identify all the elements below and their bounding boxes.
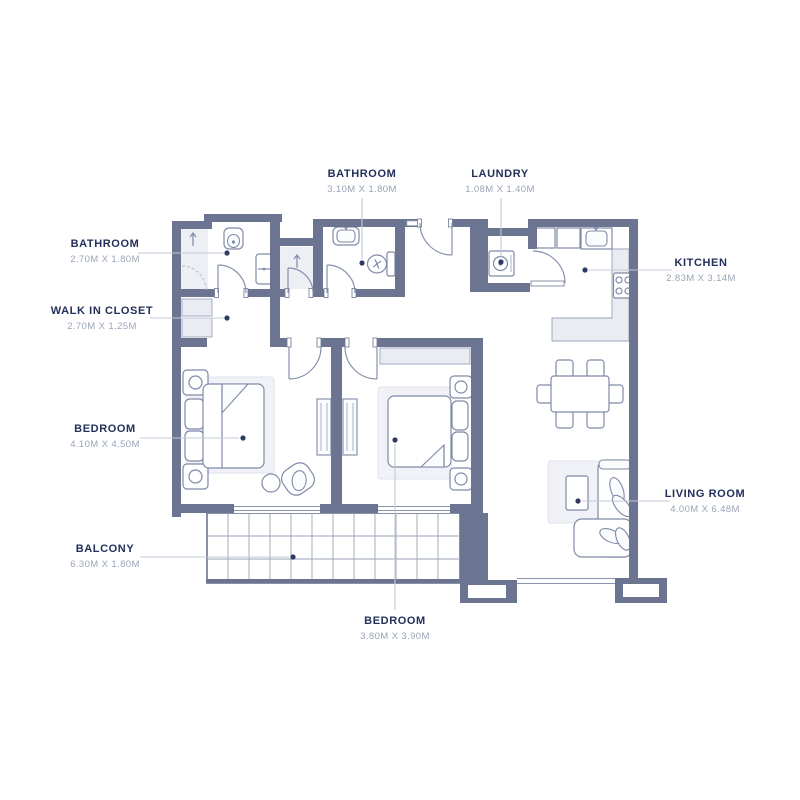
fridge-icon xyxy=(534,228,555,248)
label-bathroom-2: BATHROOM 3.10M X 1.80M xyxy=(327,168,397,195)
room-dims: 2.70M X 1.80M xyxy=(70,254,140,265)
room-dims: 1.08M X 1.40M xyxy=(465,184,535,195)
room-dims: 2.70M X 1.25M xyxy=(67,321,137,332)
room-name: KITCHEN xyxy=(674,257,727,269)
bedroom-1-window xyxy=(234,504,320,513)
room-name: BALCONY xyxy=(76,543,135,555)
toilet-icon xyxy=(224,228,243,249)
nightstand xyxy=(183,464,208,489)
column-inset xyxy=(623,584,659,597)
balcony-outer-edge xyxy=(206,579,461,584)
label-bathroom-1: BATHROOM 2.70M X 1.80M xyxy=(70,238,140,265)
room-dims: 4.10M X 4.50M xyxy=(70,439,140,450)
nightstand xyxy=(450,468,472,490)
headboard-cushion xyxy=(452,432,468,461)
label-laundry: LAUNDRY 1.08M X 1.40M xyxy=(465,168,535,195)
label-walk-in-closet: WALK IN CLOSET 2.70M X 1.25M xyxy=(51,305,154,332)
room-name: LAUNDRY xyxy=(471,168,529,180)
room-dims: 3.10M X 1.80M xyxy=(327,184,397,195)
room-name: BATHROOM xyxy=(71,238,140,250)
bedroom-2-door xyxy=(345,338,377,379)
sofa-armrest xyxy=(599,460,631,469)
laundry-door xyxy=(531,251,565,286)
floorplan-page: BATHROOM 2.70M X 1.80M WALK IN CLOSET 2.… xyxy=(0,0,800,800)
bedroom-2-wardrobe xyxy=(380,348,470,364)
bedroom-1-door xyxy=(287,338,321,379)
room-dims: 3.80M X 3.90M xyxy=(360,631,430,642)
entry-door xyxy=(418,219,453,255)
entry-niche xyxy=(407,221,418,226)
living-room-window xyxy=(517,576,615,586)
bathroom-2-door xyxy=(324,265,356,298)
room-name: BATHROOM xyxy=(328,168,397,180)
room-name: LIVING ROOM xyxy=(665,488,746,500)
kitchen-cabinet-icon xyxy=(557,228,580,248)
dining-table xyxy=(551,376,609,412)
side-table xyxy=(262,474,280,492)
label-kitchen: KITCHEN 2.83M X 3.14M xyxy=(666,257,736,284)
bedroom-2-window xyxy=(378,504,450,513)
coffee-table xyxy=(566,476,588,510)
label-living-room: LIVING ROOM 4.00M X 6.48M xyxy=(665,488,746,515)
toilet-icon xyxy=(368,252,396,276)
room-dims: 6.30M X 1.80M xyxy=(70,559,140,570)
sliding-wardrobe-left xyxy=(317,399,331,455)
bathroom-1-door xyxy=(215,265,249,298)
room-dims: 4.00M X 6.48M xyxy=(670,504,740,515)
label-balcony: BALCONY 6.30M X 1.80M xyxy=(70,543,140,570)
balcony-area xyxy=(206,513,461,584)
room-dims: 2.83M X 3.14M xyxy=(666,273,736,284)
closet-shelf xyxy=(182,318,212,337)
floorplan-svg: BATHROOM 2.70M X 1.80M WALK IN CLOSET 2.… xyxy=(0,0,800,800)
room-name: WALK IN CLOSET xyxy=(51,305,154,317)
shower-divider xyxy=(208,229,211,289)
dining-set xyxy=(537,360,623,428)
sliding-wardrobe-right xyxy=(343,399,357,455)
headboard-cushion xyxy=(185,399,204,429)
label-bedroom-1: BEDROOM 4.10M X 4.50M xyxy=(70,423,140,450)
label-bedroom-2: BEDROOM 3.80M X 3.90M xyxy=(360,615,430,642)
headboard-cushion xyxy=(185,431,204,461)
vanity-cabinet-icon xyxy=(256,254,272,284)
headboard-cushion xyxy=(452,401,468,430)
room-name: BEDROOM xyxy=(364,615,426,627)
column-inset xyxy=(468,585,506,598)
nightstand xyxy=(450,376,472,398)
room-name: BEDROOM xyxy=(74,423,136,435)
closet-shelf xyxy=(182,299,212,316)
